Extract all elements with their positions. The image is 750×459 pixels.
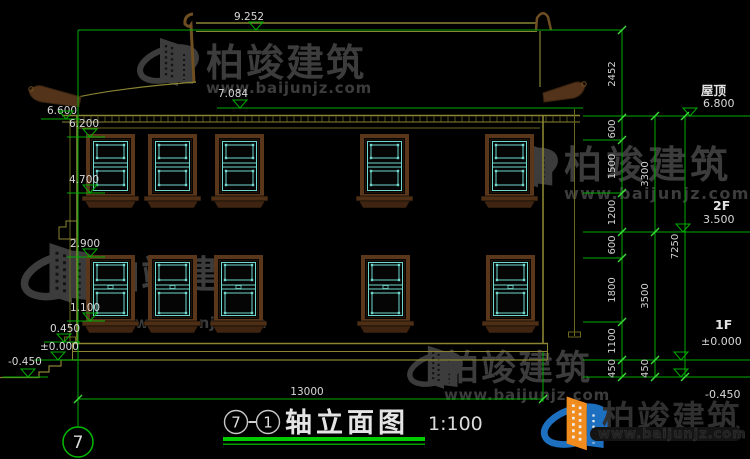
window-1f — [357, 257, 414, 333]
chain-dimension-text: 3300 — [640, 161, 651, 186]
window-sill-base — [85, 326, 136, 333]
window-1f — [210, 257, 267, 333]
window-sill — [82, 196, 139, 201]
lattice-corner-dot — [185, 157, 187, 159]
lattice-corner-dot — [370, 184, 372, 186]
dimension-text: ±0.000 — [40, 341, 79, 353]
lattice-corner-dot — [158, 144, 160, 146]
window-2f — [144, 136, 201, 208]
chain-dimension-text: 1100 — [607, 328, 618, 353]
chain-dimension-text: 450 — [640, 359, 651, 378]
dimension-text: 6.800 — [703, 97, 735, 110]
window-2f — [481, 136, 538, 208]
lattice-corner-dot — [123, 157, 125, 159]
drawing-title: 轴立面图 — [285, 407, 409, 439]
lattice-corner-dot — [495, 144, 497, 146]
lattice-corner-dot — [252, 144, 254, 146]
dimension-text: 1.100 — [70, 302, 100, 314]
lattice-corner-dot — [158, 184, 160, 186]
lattice-corner-dot — [185, 184, 187, 186]
lattice-corner-dot — [224, 292, 226, 294]
lattice-corner-dot — [123, 170, 125, 172]
lattice-corner-dot — [185, 312, 187, 314]
lattice-corner-dot — [251, 292, 253, 294]
axis-bubble-label: 7 — [73, 433, 84, 453]
dimension-text: 3.500 — [703, 213, 735, 226]
lattice-corner-dot — [523, 292, 525, 294]
lattice-corner-dot — [398, 312, 400, 314]
lattice-corner-dot — [251, 264, 253, 266]
window-sill-base — [147, 201, 198, 208]
dimension-text: 6.200 — [69, 118, 99, 130]
dimension-text: 2.900 — [70, 238, 100, 250]
lattice-corner-dot — [158, 279, 160, 281]
dimension-text: 7.084 — [218, 88, 248, 100]
lattice-corner-dot — [158, 312, 160, 314]
lattice-corner-dot — [398, 292, 400, 294]
lattice-corner-dot — [523, 312, 525, 314]
dimension-text: 13000 — [290, 386, 323, 398]
chain-dimension-text: 2452 — [607, 61, 618, 86]
dimension-text: 0.450 — [50, 323, 80, 335]
chain-dimension-text: 600 — [607, 119, 618, 138]
lattice-corner-dot — [158, 157, 160, 159]
window-1f — [144, 257, 201, 333]
dimension-text: 屋顶 — [701, 83, 727, 98]
window-sill — [357, 321, 414, 326]
lattice-corner-dot — [371, 312, 373, 314]
window-sill — [211, 196, 268, 201]
lattice-corner-dot — [123, 292, 125, 294]
lattice-corner-dot — [123, 264, 125, 266]
lattice-corner-dot — [225, 157, 227, 159]
lattice-corner-dot — [398, 264, 400, 266]
canvas-background — [0, 0, 750, 459]
lattice-corner-dot — [370, 144, 372, 146]
dimension-text: 2F — [713, 198, 730, 213]
window-sill-base — [360, 326, 411, 333]
lattice-corner-dot — [225, 170, 227, 172]
lattice-corner-dot — [185, 264, 187, 266]
title-axis-start: 7 — [231, 414, 241, 432]
lattice-corner-dot — [123, 184, 125, 186]
lattice-corner-dot — [96, 170, 98, 172]
lattice-corner-dot — [96, 157, 98, 159]
lattice-corner-dot — [371, 292, 373, 294]
lattice-corner-dot — [252, 170, 254, 172]
window-2f — [211, 136, 268, 208]
lattice-corner-dot — [522, 157, 524, 159]
lattice-corner-dot — [123, 279, 125, 281]
lattice-corner-dot — [96, 144, 98, 146]
window-sill-base — [214, 201, 265, 208]
lattice-corner-dot — [495, 157, 497, 159]
chain-dimension-text: 7250 — [670, 234, 681, 259]
window-sill — [481, 196, 538, 201]
chain-dimension-text: 1500 — [607, 154, 618, 179]
dimension-text: ±0.000 — [701, 335, 742, 348]
lattice-corner-dot — [495, 170, 497, 172]
window-sill-base — [485, 326, 536, 333]
lattice-corner-dot — [252, 157, 254, 159]
dimension-text: -0.450 — [8, 356, 42, 368]
lattice-corner-dot — [224, 264, 226, 266]
lattice-corner-dot — [158, 170, 160, 172]
lattice-corner-dot — [371, 279, 373, 281]
lattice-corner-dot — [251, 279, 253, 281]
lattice-corner-dot — [225, 144, 227, 146]
watermark-url: www.baijunjz.com — [444, 386, 610, 404]
lattice-corner-dot — [185, 292, 187, 294]
window-sill-base — [85, 201, 136, 208]
lattice-corner-dot — [96, 292, 98, 294]
title-underline-thick — [223, 437, 425, 441]
lattice-corner-dot — [522, 184, 524, 186]
lattice-corner-dot — [397, 144, 399, 146]
window-sill — [144, 196, 201, 201]
lattice-corner-dot — [224, 312, 226, 314]
window-2f — [82, 136, 139, 208]
lattice-corner-dot — [185, 170, 187, 172]
window-sill — [210, 321, 267, 326]
window-sill — [356, 196, 413, 201]
lattice-corner-dot — [522, 144, 524, 146]
dimension-text: 1F — [715, 317, 732, 332]
chain-dimension-text: 1200 — [607, 200, 618, 225]
lattice-corner-dot — [371, 264, 373, 266]
lattice-corner-dot — [397, 184, 399, 186]
lattice-corner-dot — [96, 279, 98, 281]
chain-dimension-text: 1800 — [607, 277, 618, 302]
lattice-corner-dot — [397, 157, 399, 159]
lattice-corner-dot — [158, 292, 160, 294]
chain-dimension-text: 3500 — [640, 283, 651, 308]
lattice-corner-dot — [252, 184, 254, 186]
lattice-corner-dot — [496, 264, 498, 266]
lattice-corner-dot — [523, 279, 525, 281]
window-sill — [144, 321, 201, 326]
window-1f — [82, 257, 139, 333]
lattice-corner-dot — [397, 170, 399, 172]
window-sill — [82, 321, 139, 326]
title-underline-thin — [223, 444, 425, 446]
lattice-corner-dot — [123, 312, 125, 314]
dimension-text: 4.700 — [69, 174, 99, 186]
window-sill-base — [359, 201, 410, 208]
lattice-corner-dot — [123, 144, 125, 146]
chain-dimension-text: 600 — [607, 235, 618, 254]
brand-logo-url: www.baijunjz.com — [598, 427, 747, 442]
lattice-corner-dot — [224, 279, 226, 281]
lattice-corner-dot — [495, 184, 497, 186]
watermark-name: 柏竣建筑 — [444, 348, 592, 389]
window-sill-base — [147, 326, 198, 333]
lattice-corner-dot — [185, 279, 187, 281]
window-sill — [482, 321, 539, 326]
lattice-corner-dot — [185, 144, 187, 146]
lattice-corner-dot — [523, 264, 525, 266]
title-axis-end: 1 — [263, 414, 273, 432]
lattice-corner-dot — [96, 264, 98, 266]
lattice-corner-dot — [522, 170, 524, 172]
chain-dimension-text: 450 — [607, 359, 618, 378]
lattice-corner-dot — [370, 157, 372, 159]
lattice-corner-dot — [398, 279, 400, 281]
lattice-corner-dot — [496, 312, 498, 314]
drawing-scale: 1:100 — [428, 413, 483, 435]
lattice-corner-dot — [496, 292, 498, 294]
cad-elevation-screenshot: 柏竣建筑www.baijunjz.com 柏竣建筑www.baijunjz.co… — [0, 0, 750, 459]
dimension-text: 9.252 — [234, 11, 264, 23]
window-2f — [356, 136, 413, 208]
lattice-corner-dot — [225, 184, 227, 186]
window-1f — [482, 257, 539, 333]
lattice-corner-dot — [251, 312, 253, 314]
lattice-corner-dot — [496, 279, 498, 281]
lattice-corner-dot — [370, 170, 372, 172]
lattice-corner-dot — [158, 264, 160, 266]
window-sill-base — [213, 326, 264, 333]
elevation-drawing-canvas: 柏竣建筑www.baijunjz.com 柏竣建筑www.baijunjz.co… — [0, 0, 750, 459]
window-sill-base — [484, 201, 535, 208]
